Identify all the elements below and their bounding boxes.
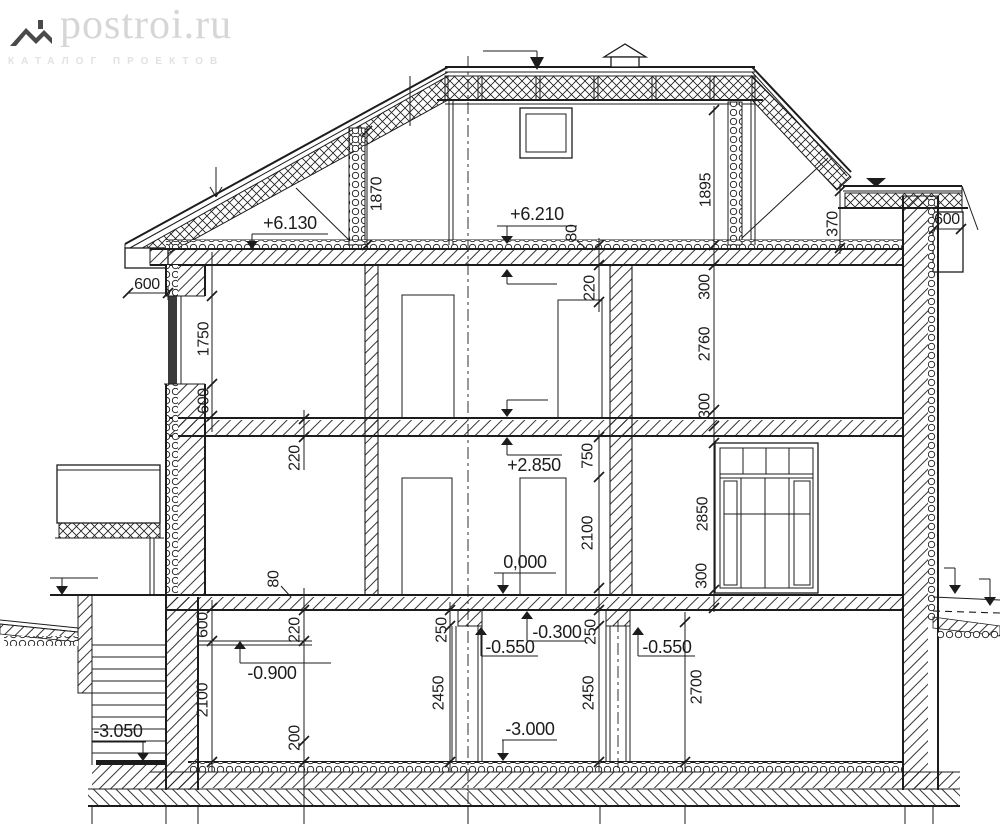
svg-text:-3.000: -3.000 [505,719,555,739]
dim-basement-top-left: 600 [195,612,212,638]
dim-wall-center: 2100 [580,515,597,550]
ground-right [933,568,1000,640]
svg-text:-0.900: -0.900 [247,663,297,683]
dim-basement-floor-left: 200 [287,725,304,751]
brand-tagline: КАТАЛОГ ПРОЕКТОВ [8,56,232,67]
dim-sill-left: 600 [196,388,213,414]
svg-text:+6.210: +6.210 [510,204,564,224]
attic-window [520,108,572,158]
site-logo[interactable]: postroi.ru КАТАЛОГ ПРОЕКТОВ [8,4,232,67]
svg-text:-3.050: -3.050 [93,721,143,741]
basement-wall-left [452,626,482,762]
partition-wall [365,265,378,595]
page: 1870 1895 370 1750 600 220 80 220 300 27… [0,0,1000,835]
level-garage: -0.900 [234,641,331,683]
svg-text:-0.550: -0.550 [485,637,535,657]
dim-eaves-left: 600 [134,276,160,293]
svg-text:-0.550: -0.550 [642,637,692,657]
door-2f-right [558,300,602,418]
level-floor2: +2.850 [501,400,562,475]
dim-floor2-bottom: 300 [697,393,714,419]
door-1f-left [402,478,452,595]
dim-attic-ceiling: 220 [582,275,599,301]
lintel-left [458,610,482,626]
svg-text:+6.130: +6.130 [263,213,317,233]
dim-basement-room-center: 2450 [581,675,598,710]
chimney [604,44,646,67]
brand-name: postroi.ru [60,4,232,46]
dim-roof-offset: 370 [825,211,842,237]
attic-frame-wall-left [349,128,365,245]
level-ground: 0,000 [494,552,556,594]
dim-attic-slab-thickness: 80 [564,224,581,242]
dim-basement-room-right: 2700 [689,669,706,704]
walls [164,196,938,790]
bearing-wall [610,265,632,595]
dim-basement-step: 220 [287,617,304,643]
svg-text:-0.300: -0.300 [532,622,582,642]
dim-lintel-left: 250 [434,617,451,643]
level-basement: -3.000 [497,719,557,761]
door-1f-right [520,478,566,595]
level-beam-left: -0.550 [475,627,538,657]
dim-attic-left-height: 1870 [369,176,386,211]
exterior-stairs [78,595,166,789]
right-window [715,443,818,593]
house-section-drawing: 1870 1895 370 1750 600 220 80 220 300 27… [0,0,1000,835]
svg-text:+2.850: +2.850 [507,455,561,475]
dim-floor2-top: 300 [697,274,714,300]
svg-text:0,000: 0,000 [503,552,547,572]
dim-floor2-room: 2760 [697,326,714,361]
dim-porch-slab: 80 [266,570,283,588]
door-2f-left [402,295,454,418]
dim-attic-right-height: 1895 [698,172,715,207]
attic-frame-wall-right [728,102,742,245]
dim-parapet: 750 [580,443,597,469]
dim-eaves-right: 600 [934,211,960,228]
dim-window-left-height: 1750 [196,321,213,356]
logo-house-icon [8,12,52,52]
dim-window-right-height: 2850 [695,496,712,531]
dim-slab2-thickness: 220 [287,445,304,471]
level-beam-right: -0.550 [632,627,695,657]
porch-canopy [55,465,164,595]
retaining-wall [78,595,92,693]
dim-basement-room-left: 2450 [431,675,448,710]
dim-basement-left-height: 2100 [195,682,212,717]
dim-sill-right: 300 [694,563,711,589]
basement-wall-right [606,620,630,768]
